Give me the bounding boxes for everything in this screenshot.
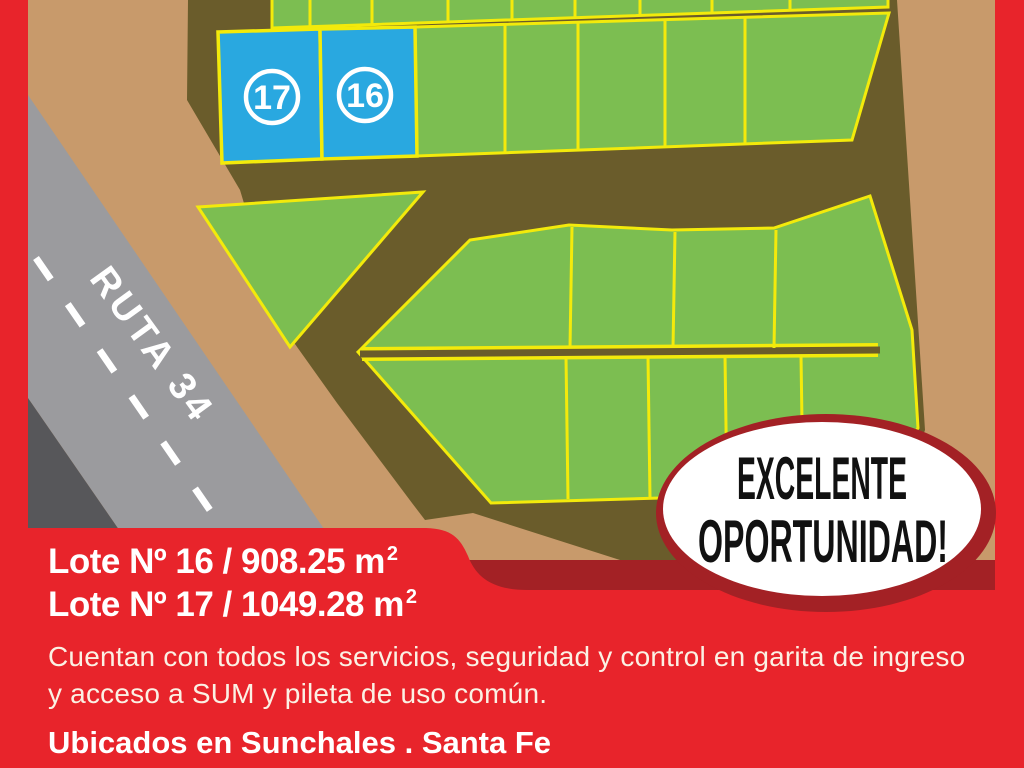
lot-16-number: 16 (346, 77, 384, 115)
lot-17-area: Lote Nº 17 / 1049.28 m2 (48, 586, 978, 629)
services-description-line2: y acceso a SUM y pileta de uso común. (48, 675, 978, 712)
services-description: Cuentan con todos los servicios, segurid… (48, 638, 978, 712)
lot-17-area-sup: 2 (406, 586, 417, 608)
middle-street (360, 350, 880, 354)
lot-17-area-text: Lote Nº 17 / 1049.28 m (48, 585, 404, 624)
lot-16-area-sup: 2 (387, 543, 398, 565)
services-description-line1: Cuentan con todos los servicios, segurid… (48, 638, 978, 675)
badge-text-line1: EXCELENTE (737, 445, 907, 512)
lot-16-area-text: Lote Nº 16 / 908.25 m (48, 542, 385, 581)
lot-block-second-row: 17 16 (218, 13, 889, 163)
lot-16-area: Lote Nº 16 / 908.25 m2 (48, 543, 978, 586)
flyer-background: RUTA 34 (0, 0, 1024, 768)
lot-17-number: 17 (253, 79, 291, 117)
location-line: Ubicados en Sunchales . Santa Fe (48, 725, 978, 761)
details-block: Lote Nº 16 / 908.25 m2 Lote Nº 17 / 1049… (48, 543, 978, 761)
